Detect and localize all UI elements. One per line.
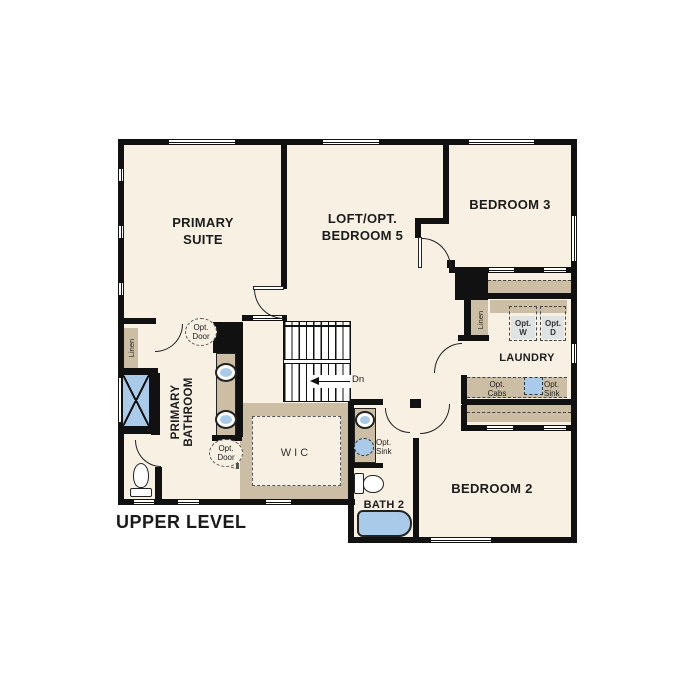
wall-vanity-back: [236, 353, 243, 437]
primary-bathroom-label: PRIMARYBATHROOM: [163, 352, 203, 472]
bedroom3-closet-shelf: [488, 280, 571, 293]
wall-closet3-bottom: [488, 293, 571, 299]
window-left-2: [118, 225, 124, 239]
opt-door-upper-badge: Opt.Door: [185, 318, 217, 346]
primary-toilet-bowl: [133, 463, 149, 488]
primary-sink-2: [215, 410, 237, 429]
linen-left-label: Linen: [125, 328, 137, 368]
opt-dryer-box: Opt.D: [540, 306, 566, 341]
opt-washer-label: Opt.W: [515, 319, 531, 337]
wall-bath2-left: [348, 402, 354, 543]
closet3-door-1: [488, 267, 515, 273]
window-left-1: [118, 168, 124, 182]
bath2-label: BATH 2: [344, 497, 424, 514]
opt-washer-box: Opt.W: [509, 306, 537, 341]
bedroom3-label: BEDROOM 3: [440, 196, 580, 213]
closet3-door-2: [543, 267, 567, 273]
window-left-3: [118, 282, 124, 296]
wic-label: WIC: [255, 445, 337, 462]
opt-sink-bath2-label: Opt.Sink: [376, 438, 402, 456]
floor-plan: Dn Opt.W Opt.D PRIMARYSUITE LOFT/OPT.BE: [0, 0, 687, 687]
stairs-down-label: Dn: [352, 375, 364, 384]
wall-laundry-mid: [462, 399, 571, 405]
bedroom2-label: BEDROOM 2: [422, 480, 562, 497]
linen-right-label: Linen: [474, 300, 486, 340]
plan-title: UPPER LEVEL: [116, 514, 336, 531]
wall-laundry-chunk: [455, 270, 488, 300]
window-bottom-3: [265, 499, 292, 505]
primary-suite-label: PRIMARYSUITE: [133, 214, 273, 248]
window-bottom-1: [133, 499, 155, 505]
wall-bath2-vanity-stub: [354, 463, 383, 468]
bath2-toilet-bowl: [363, 475, 384, 493]
opt-dryer-label: Opt.D: [545, 319, 561, 337]
wall-bath2-top: [348, 399, 383, 405]
closet2-door-1: [486, 425, 514, 431]
opt-sink-laundry-label: Opt.Sink: [544, 380, 570, 398]
primary-toilet-tank: [130, 488, 152, 497]
window-bottom-2: [177, 499, 200, 505]
wall-shower-bottom: [118, 428, 160, 434]
window-bedroom2-bottom: [430, 537, 492, 543]
wall-bedroom2-left: [413, 438, 419, 543]
shower: [121, 373, 151, 428]
laundry-label: LAUNDRY: [467, 350, 587, 367]
bathtub: [357, 510, 412, 537]
wall-toilet-room-right: [155, 467, 162, 499]
stairs-down-arrow: [310, 377, 350, 385]
window-primary-top: [168, 139, 236, 145]
window-loft-top: [322, 139, 380, 145]
primary-sink-1: [215, 363, 237, 382]
laundry-opt-sink: [524, 377, 543, 395]
bath2-opt-sink: [354, 438, 374, 456]
opt-door-lower-badge: Opt.Door: [209, 439, 243, 467]
window-bedroom3-right: [571, 215, 577, 262]
bath2-sink: [355, 411, 375, 429]
wall-shower-right: [151, 373, 160, 435]
opt-cabs-label: Opt.Cabs: [478, 380, 516, 398]
closet2-door-2: [543, 425, 567, 431]
window-bedroom3-top: [468, 139, 535, 145]
staircase: [283, 321, 351, 402]
loft-label: LOFT/OPT.BEDROOM 5: [285, 210, 440, 244]
wall-suite-bottom: [118, 318, 156, 324]
wall-bath-chunk: [213, 322, 243, 353]
bedroom2-closet-shelf: [467, 405, 571, 422]
